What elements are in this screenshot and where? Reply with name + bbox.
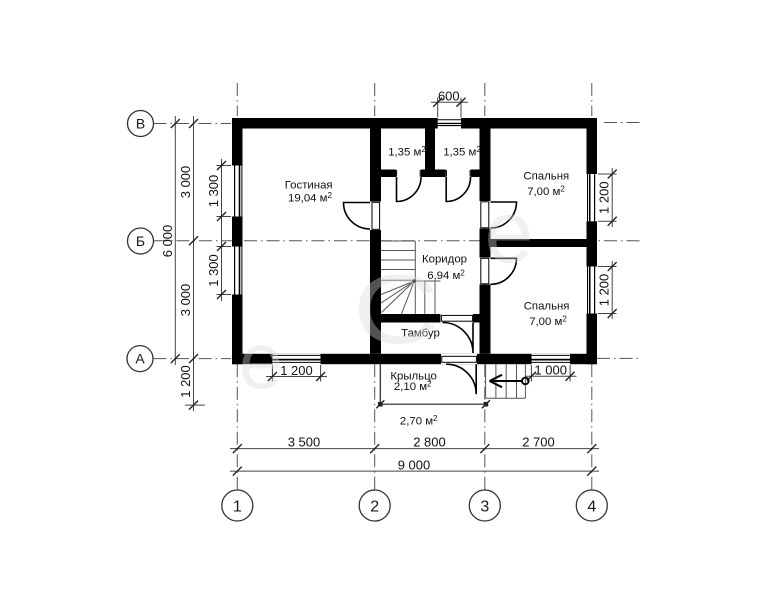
svg-text:Гостиная: Гостиная [285, 180, 333, 192]
svg-text:1 200: 1 200 [597, 181, 612, 214]
svg-text:Спальня: Спальня [523, 171, 569, 183]
svg-text:1 300: 1 300 [206, 254, 221, 287]
svg-text:2 700: 2 700 [522, 435, 555, 450]
svg-text:2 800: 2 800 [413, 435, 446, 450]
svg-text:1 200: 1 200 [178, 365, 193, 398]
svg-text:1 200: 1 200 [597, 274, 612, 307]
svg-text:2: 2 [370, 498, 379, 515]
svg-text:2,70 м2: 2,70 м2 [400, 414, 438, 428]
svg-text:А: А [135, 351, 145, 367]
svg-text:В: В [136, 116, 145, 132]
svg-text:9 000: 9 000 [398, 457, 431, 472]
svg-text:1,35 м2: 1,35 м2 [388, 145, 426, 159]
svg-text:19,04 м2: 19,04 м2 [288, 191, 333, 205]
svg-text:7,00 м2: 7,00 м2 [529, 315, 567, 329]
svg-text:1 200: 1 200 [280, 363, 313, 378]
svg-text:С: С [353, 255, 439, 364]
svg-text:Спальня: Спальня [524, 301, 570, 313]
svg-text:e: e [239, 316, 284, 405]
svg-text:e: e [485, 182, 534, 281]
svg-text:600: 600 [438, 89, 460, 104]
svg-text:3: 3 [480, 498, 489, 515]
svg-text:2,10 м2: 2,10 м2 [394, 379, 432, 393]
svg-text:6 000: 6 000 [160, 225, 175, 258]
svg-text:3 500: 3 500 [288, 435, 321, 450]
svg-text:1,35 м2: 1,35 м2 [443, 145, 481, 159]
svg-text:Б: Б [136, 233, 145, 249]
svg-text:3 000: 3 000 [178, 166, 193, 199]
svg-text:1 300: 1 300 [206, 175, 221, 208]
svg-text:3 000: 3 000 [178, 284, 193, 317]
svg-text:1: 1 [233, 498, 242, 515]
svg-text:1 000: 1 000 [534, 363, 567, 378]
svg-text:4: 4 [587, 498, 596, 515]
